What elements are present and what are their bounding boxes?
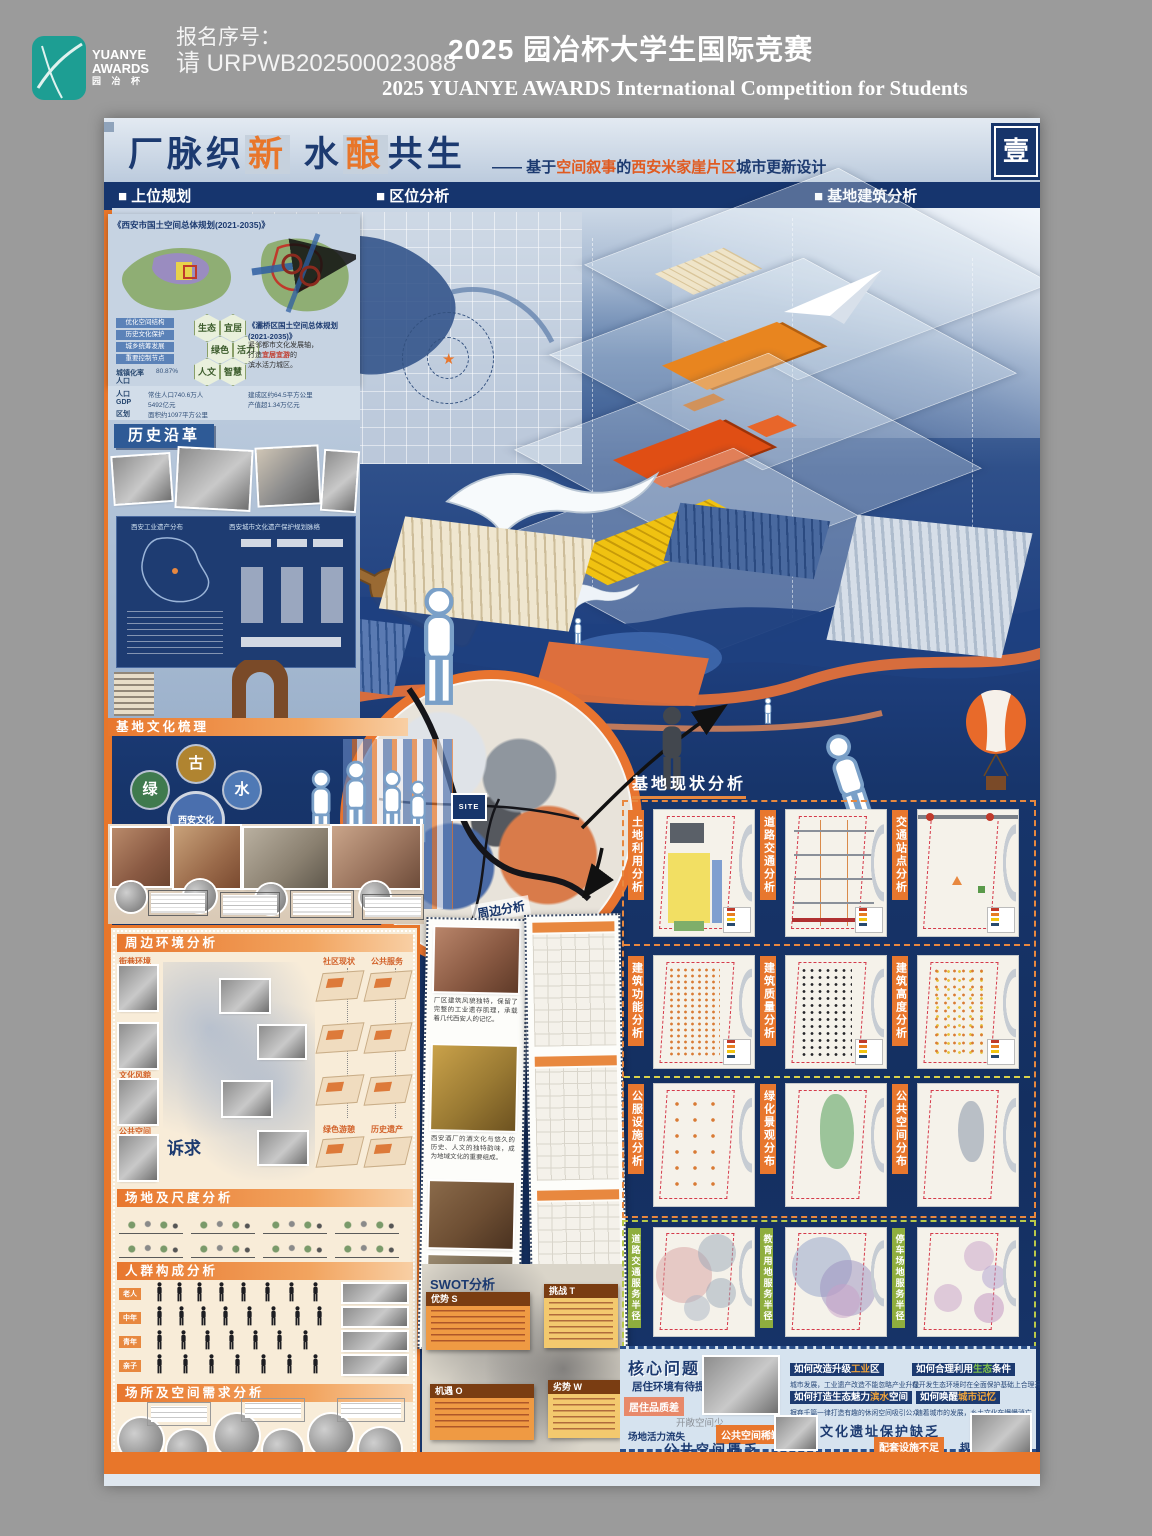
parking-service-radius-map [918,1228,1018,1336]
upper-planning-panel: 《西安市国土空间总体规划(2021-2035)》 优化空间结构 历史文化保护 城… [108,214,360,386]
axon-diagram [315,1136,364,1167]
outline-figure [412,588,472,708]
history-photo-3 [257,446,320,505]
space-blob [958,1101,984,1162]
nav-upper-planning: ■ 上位规划 [118,185,191,206]
subtitle-accent-2: 西安米家崖片区 [631,159,736,176]
group-tag: 亲子 [119,1360,141,1372]
radius-circle-lilac [934,1284,962,1312]
bottom-light-strip [104,1474,1040,1486]
map-legend [855,907,883,933]
env-inline-photo [259,1026,305,1058]
interview-bubble [290,890,354,918]
stat-area-label: 区划 [116,409,130,419]
stat-gdp-label: GDP [116,399,131,406]
main-road [792,918,876,922]
history-photo-4 [322,451,358,511]
map-legend [723,907,751,933]
swot-opportunity-label: 机遇 O [430,1384,534,1398]
swot-text-lines [435,1402,529,1432]
poster-title-band: 厂脉织新 水酿共生 —— 基于空间叙事的西安米家崖片区城市更新设计 壹 [104,118,1040,182]
logo-line3: 园 冶 杯 [92,77,149,86]
radius-circle-gray [698,1234,736,1272]
radius-circle-lilac [826,1284,860,1318]
problem-photo-silo [704,1357,778,1413]
section-sketch [335,1237,399,1258]
env-right-tag: 公共服务 [371,956,403,967]
education-service-radius-map [786,1228,886,1336]
station-dot [926,813,934,821]
heritage-photo [174,826,240,888]
map-strip-header [532,921,614,932]
station-dot [986,813,994,821]
history-photo-2 [177,448,252,510]
section-sketch [263,1237,327,1258]
axon-diagram [363,1074,412,1105]
service-dots [668,1096,720,1194]
stations-label: 交通站点分析 [892,810,908,900]
q3-highlight: 滨水 [870,1392,889,1403]
env-analysis-header: 周边环境分析 [117,934,413,952]
site-analysis-panel: 周边环境分析 街巷环境 文化风貌 公共空间 诉求 社区现状 公共服务 [108,925,420,1474]
building-function-map [654,956,754,1068]
people-analysis-header: 人群构成分析 [117,1262,413,1280]
q-industry-note: 城市发展，工业遗产改造不能忽略产业升级 [790,1379,919,1389]
petal-shui: 水 [224,772,260,808]
q3-text: 如何打造生态魅力 [794,1392,870,1403]
quality-speckle [800,967,852,1057]
page-number-badge: 壹 [994,126,1038,177]
swot-text-lines [549,1302,613,1340]
green-landscape-map [786,1084,886,1206]
surround-caption-2: 西安酒厂的酒文化与悠久的历史、人文的独特韵味，成为地域文化的重要组成。 [430,1135,515,1163]
swot-weakness-card: 劣势 W [548,1380,620,1438]
swot-text-lines [553,1398,615,1430]
map-strip-header [537,1189,619,1200]
mosaic-decor [104,122,114,132]
poster-page: YUANYE AWARDS 园 冶 杯 报名序号： 请 URPWB2025000… [0,0,1152,1536]
note-2b-accent: 宜居宜游 [262,352,290,359]
env-photo [119,1080,157,1124]
planning-chip: 历史文化保护 [116,330,174,340]
swot-challenge-card: 挑战 T [544,1284,618,1348]
logo-wordmark: YUANYE AWARDS 园 冶 杯 [92,48,149,87]
group-tag: 青年 [119,1336,141,1348]
swot-opportunity-card: 机遇 O [430,1384,534,1440]
subtitle-accent-1: 空间叙事 [556,159,616,176]
landuse-map [654,810,754,936]
stat-pop-value: 常住人口740.6万人 [148,389,203,399]
registration-number: 报名序号： 请 URPWB202500023088 [176,26,456,78]
interview-bubble [148,890,208,916]
height-label: 建筑高度分析 [892,956,908,1046]
function-label: 建筑功能分析 [628,956,644,1046]
q-ecology-note: 在开发生态环境时在全面保护基础上合理开发 [912,1379,1040,1389]
scale-analysis-header: 场地及尺度分析 [117,1189,413,1207]
stations-map [918,810,1018,936]
title-accent2: 酿 [343,135,388,174]
planning-chip: 重要控制节点 [116,354,174,364]
swot-strength-card: 优势 S [426,1292,530,1350]
history-chart-panel: 西安工业遗产分布 西安城市文化遗产保护规划脉络 [116,516,356,668]
roads-label: 道路交通分析 [760,810,776,900]
interviewee-photo [116,882,146,912]
hexagon: 智慧 [220,358,246,386]
note-2c: 的 [290,352,297,359]
heritage-photo [244,828,328,888]
station-square [978,886,985,893]
hexagon: 宜居 [220,314,246,342]
swot-challenge-label: 挑战 T [544,1284,618,1298]
education-radius-label: 教育用地服务半径 [760,1228,773,1328]
env-right-tag: 历史遗产 [371,1124,403,1135]
group-tag: 中年 [119,1312,141,1324]
env-photo [119,966,157,1010]
axon-diagram [315,970,364,1001]
people-photo [343,1332,407,1350]
hexagon: 生态 [194,314,220,342]
petal-lv: 绿 [132,772,168,808]
history-text-lines [127,611,223,659]
swot-weakness-label: 劣势 W [548,1380,620,1394]
hexagon: 绿色 [207,336,233,364]
swot-title: SWOT分析 [430,1274,495,1293]
poster-subtitle: —— 基于空间叙事的西安米家崖片区城市更新设计 [492,156,826,177]
note-2a: 打造 [248,352,262,359]
problem-photo-factory [776,1417,816,1449]
q-industry: 如何改造升级工业区 [790,1363,884,1376]
section-sketch [335,1213,399,1234]
interview-bubble [362,894,424,920]
map-legend [987,907,1015,933]
q1-tail: 区 [870,1364,880,1375]
registration-label: 报名序号： [176,26,456,50]
parking-radius-label: 停车场地服务半径 [892,1228,905,1328]
section-sketch [191,1237,255,1258]
pale-city-cluster [826,515,1032,658]
landuse-green [674,921,704,931]
baqiao-masterplan-doc: 《灞桥区国土空间总体规划(2021-2035)》 [248,320,358,342]
axon-diagram [315,1074,364,1105]
title-part3: 共生 [388,135,466,174]
q-memory: 如何唤醒城市记忆 [916,1391,1000,1404]
swot-text-lines [431,1310,525,1342]
public-space-label: 公共空间分布 [892,1084,908,1174]
hot-air-balloon-icon [958,690,1034,810]
landuse-label: 土地利用分析 [628,810,644,900]
station-triangle [952,876,962,885]
public-space-map [918,1084,1018,1206]
calligraphy-strip [114,672,154,716]
stat-built-value: 建成区约64.5平方公里 [248,389,313,399]
demand-label: 诉求 [167,1134,201,1159]
logo-line2: AWARDS [92,62,149,76]
map-strip-header [535,1055,617,1066]
display-wall-photo [429,1181,514,1249]
section-sketch [119,1237,183,1258]
site-star-marker: ★ [442,350,455,368]
axon-diagram [363,1136,412,1167]
stat-pop-label: 人口 [116,389,130,399]
culture-section-header: 基地文化梳理 [108,718,408,736]
people-photo [343,1308,407,1326]
surround-caption-1: 厂区建筑风貌独特，保留了完整的工业遗存肌理，承载着几代西安人的记忆。 [433,997,518,1025]
competition-title-cn: 2025 园冶杯大学生国际竞赛 [448,28,813,68]
radius-circle-lilac [964,1241,994,1271]
history-photo-1 [112,454,171,504]
baqiao-note-1: 紧邻都市文化发展轴， [248,340,318,350]
title-part1: 厂脉织 [128,135,245,174]
q-waterfront-note: 摒弃千篇一律打造有趣的休闲空间吸引公众 [790,1407,919,1417]
baqiao-note-2: 打造宜居宜游的 [248,350,297,360]
history-title: 历史沿革 [114,424,214,448]
people-photo [343,1356,407,1374]
roads-map [786,810,886,936]
core-problems-panel: 核心问题 居住环境有待提升 居住品质差 开敞空间少 场地活力流失 公共空间稀缺 … [620,1346,1036,1452]
axon-diagram [315,1022,364,1053]
height-speckle [932,967,984,1057]
logo-line1: YUANYE [92,48,149,62]
env-right-tag: 社区现状 [323,956,355,967]
q3-tail: 空间 [889,1392,908,1403]
petal-gu: 古 [178,746,214,782]
stats-strip: 人口 常住人口740.6万人 GDP 5492亿元 区划 面积约1097平方公里… [108,386,360,420]
stat-area-value: 面积约1097平方公里 [148,409,208,419]
status-analysis-title: 基地现状分析 [632,770,746,799]
subtitle-1: 基于 [526,159,556,176]
landuse-river [712,860,722,923]
stat-gdp-value: 5492亿元 [148,399,175,409]
yuanye-awards-logo-icon [32,36,86,100]
building-height-map [918,956,1018,1068]
problems-title: 核心问题 [628,1355,700,1379]
env-inline-photo [259,1132,307,1164]
map-legend [855,1039,883,1065]
axon-diagram [363,970,412,1001]
competition-title-en: 2025 YUANYE AWARDS International Competi… [382,76,968,101]
heritage-org-chart [235,533,347,659]
nav-location-analysis: ■ 区位分析 [376,185,449,206]
paper-plane-icon [782,268,892,328]
public-service-map [654,1084,754,1206]
surround-map [533,933,617,1046]
q2-tail: 条件 [992,1364,1011,1375]
function-speckle [668,967,720,1057]
map-legend [987,1039,1015,1065]
subtitle-dash: —— [492,159,522,176]
industry-heritage-chart-title: 西安工业遗产分布 [131,521,183,531]
cream-building-cluster [726,214,805,248]
road-service-radius-map [654,1228,754,1336]
registration-value: 请 URPWB202500023088 [176,50,456,78]
interview-bubble [220,892,280,918]
radius-circle-gray [706,1278,736,1308]
q2-text: 如何合理利用 [916,1364,973,1375]
stat-value: 80.87% [156,368,178,375]
group-tag: 老人 [119,1288,141,1300]
q-ecology: 如何合理利用生态条件 [912,1363,1015,1376]
env-photo [119,1136,157,1180]
subtitle-3: 城市更新设计 [736,159,826,176]
q2-highlight: 生态 [973,1364,992,1375]
surround-map [535,1067,619,1180]
env-inline-photo [221,980,269,1012]
people-photo [343,1284,407,1302]
problem-photo-machine [972,1415,1030,1455]
road-grid [794,820,874,926]
title-accent1: 新 [245,135,290,174]
env-right-tag: 绿色游憩 [323,1124,355,1135]
planning-chip: 优化空间结构 [116,318,174,328]
needs-callout [147,1402,211,1426]
bottom-orange-strip [104,1452,1040,1474]
public-service-label: 公服设施分析 [628,1084,644,1174]
env-photo [119,1024,157,1068]
radius-circle-lilac [982,1265,1006,1289]
q1-text: 如何改造升级 [794,1364,851,1375]
q4-highlight: 城市记忆 [958,1392,996,1403]
section-sketch [263,1213,327,1234]
xian-masterplan-doc: 《西安市国土空间总体规划(2021-2035)》 [113,219,270,231]
q4-text: 如何唤醒 [920,1392,958,1403]
row-separator [624,1076,1030,1078]
building-quality-map [786,956,886,1068]
title-part2: 水 [304,135,343,174]
swot-strength-label: 优势 S [426,1292,530,1306]
quality-label: 建筑质量分析 [760,956,776,1046]
radius-circle-gray [684,1295,710,1321]
heritage-photo [332,826,420,888]
culture-heritage-chart-title: 西安城市文化遗产保护规划脉络 [229,521,320,531]
road-radius-label: 道路交通服务半径 [628,1228,641,1328]
xian-masterplan-map [114,232,242,314]
factory-gate-photo [434,927,519,993]
history-panel: 历史沿革 西安工业遗产分布 西安城市文化遗产保护规划脉络 [108,420,360,718]
red-building-small [747,415,797,437]
section-sketch [191,1213,255,1234]
q1-highlight: 工业 [851,1364,870,1375]
landuse-gray [670,823,704,843]
stat-label: 人口 [116,376,130,386]
map-legend [723,1039,751,1065]
env-inline-photo [223,1082,271,1116]
swot-collage: SWOT分析 优势 S 挑战 T 机遇 O 劣势 W [422,1264,624,1454]
planning-chip: 城乡统筹发展 [116,342,174,352]
people-activity-figures [155,1282,335,1382]
baqiao-note-3: 滨水活力城区。 [248,360,297,370]
green-blob [820,1094,854,1170]
axon-diagram [363,1022,412,1053]
poster-title: 厂脉织新 水酿共生 [128,126,466,177]
landuse-yellow [668,853,710,924]
problem-housing-quality: 居住品质差 [624,1397,684,1416]
heritage-photo [112,828,170,886]
green-label: 绿化景观分布 [760,1084,776,1174]
baqiao-map [248,228,356,318]
stat-output-value: 产值超1.34万亿元 [248,399,300,409]
poster-board: 厂脉织新 水酿共生 —— 基于空间叙事的西安米家崖片区城市更新设计 壹 ■ 上位… [104,118,1040,1486]
yellow-house-photo [431,1045,517,1131]
hexagon: 人文 [194,358,220,386]
needs-callout [241,1398,305,1422]
interview-collage [108,824,424,924]
shaanxi-outline-map [127,533,219,607]
radius-circle-lilac [974,1293,1004,1323]
subtitle-2: 的 [616,159,631,176]
q-waterfront: 如何打造生态魅力滨水空间 [790,1391,912,1404]
factory-arch-1935-icon [228,660,292,718]
section-sketch [119,1213,183,1234]
row-separator [624,944,1030,946]
needs-callout [337,1398,405,1422]
